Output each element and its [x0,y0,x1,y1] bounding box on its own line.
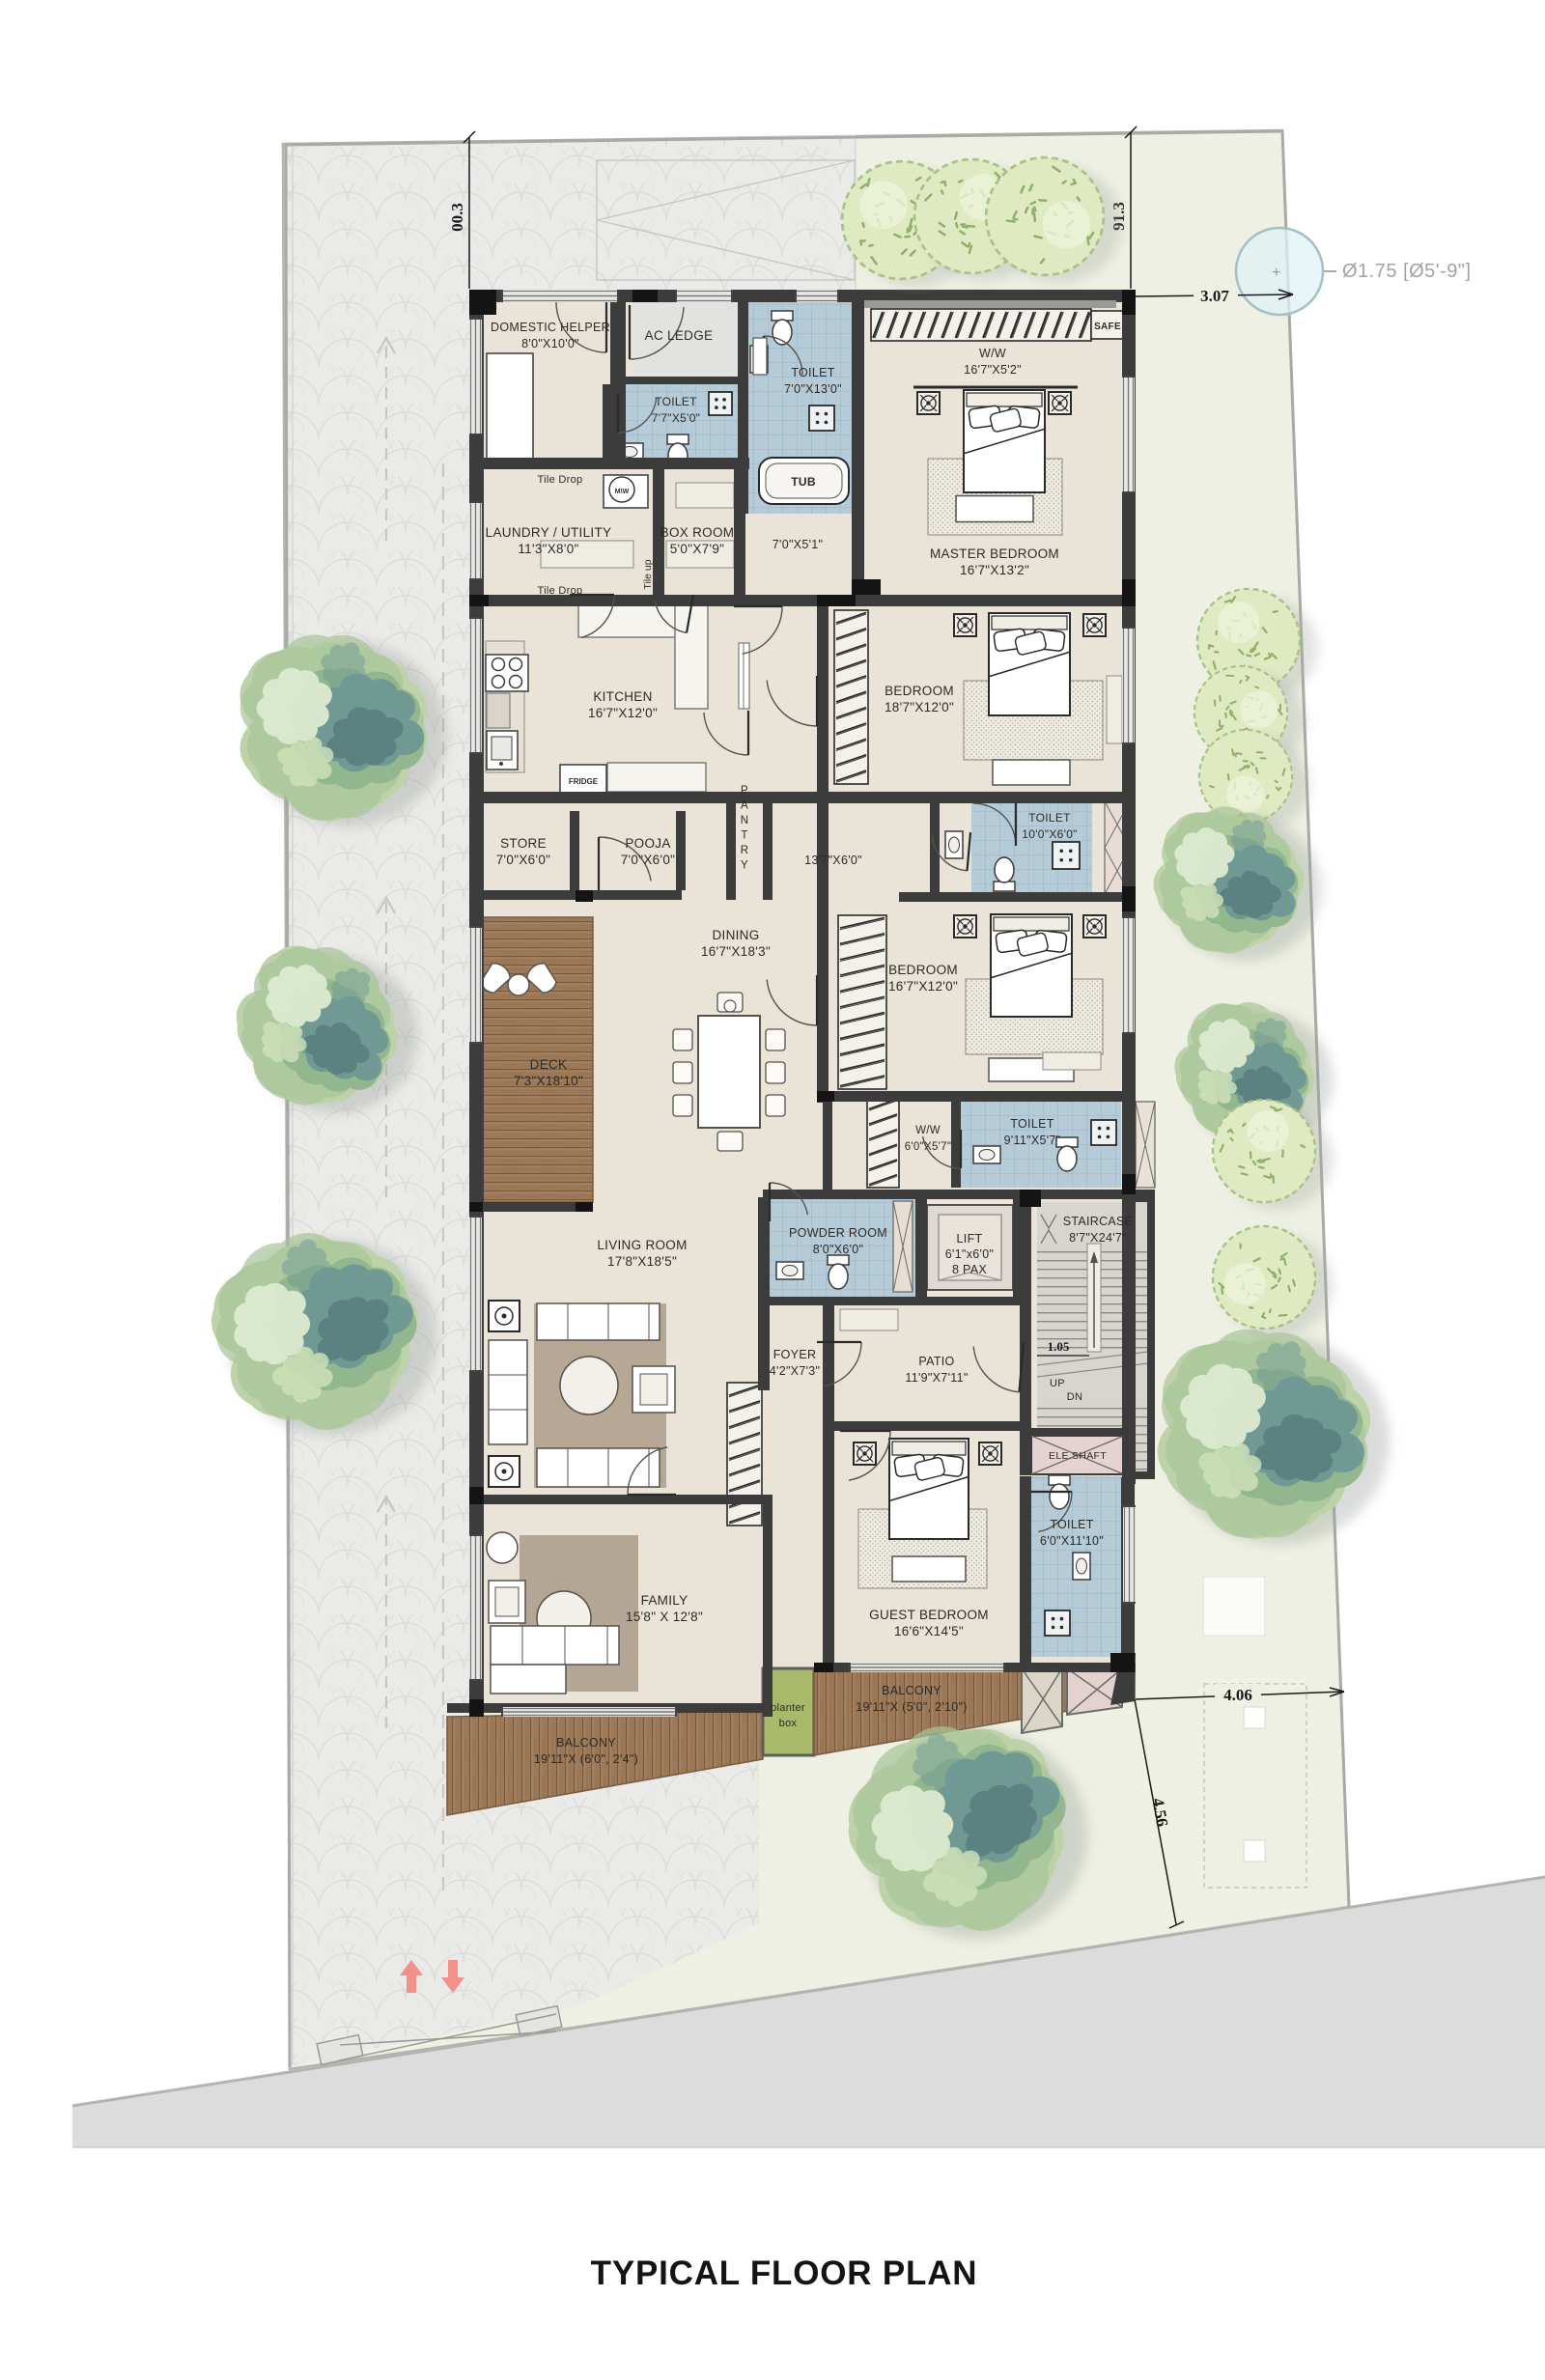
svg-text:4.06: 4.06 [1223,1686,1252,1704]
svg-text:19'11"X (6'0", 2'4"): 19'11"X (6'0", 2'4") [534,1752,638,1766]
svg-text:3.07: 3.07 [1200,287,1229,305]
svg-text:Tile Drop: Tile Drop [538,585,583,597]
svg-text:UP: UP [1050,1378,1065,1389]
svg-text:P: P [741,785,748,797]
svg-text:POOJA: POOJA [625,836,670,851]
svg-text:DECK: DECK [530,1057,568,1072]
svg-text:5'0"X7'9": 5'0"X7'9" [670,542,724,556]
svg-text:+: + [1272,265,1281,281]
svg-text:11'3"X8'0": 11'3"X8'0" [518,542,578,556]
svg-text:M\W: M\W [615,489,630,495]
svg-text:DOMESTIC HELPER: DOMESTIC HELPER [491,321,610,334]
svg-text:TOILET: TOILET [1050,1518,1093,1531]
svg-text:FRIDGE: FRIDGE [569,777,599,786]
svg-text:8'7"X24'7": 8'7"X24'7" [1069,1231,1127,1245]
svg-text:9'11"X5'7": 9'11"X5'7" [1004,1134,1061,1147]
svg-text:8 PAX: 8 PAX [952,1263,987,1276]
svg-text:Y: Y [741,860,748,872]
svg-text:8'0"X6'0": 8'0"X6'0" [813,1243,864,1256]
svg-text:FAMILY: FAMILY [641,1593,688,1608]
svg-text:TOILET: TOILET [791,366,834,379]
svg-text:6'0"X5'7": 6'0"X5'7" [905,1141,952,1153]
svg-text:MASTER BEDROOM: MASTER BEDROOM [930,546,1059,561]
svg-text:STORE: STORE [500,836,547,851]
svg-text:TOILET: TOILET [1028,811,1071,825]
svg-text:BALCONY: BALCONY [882,1684,941,1697]
svg-text:GUEST BEDROOM: GUEST BEDROOM [869,1608,989,1622]
svg-text:planter: planter [771,1702,805,1714]
svg-text:ELE.SHAFT: ELE.SHAFT [1049,1450,1107,1462]
svg-text:11'9"X7'11": 11'9"X7'11" [905,1371,968,1385]
svg-text:LIFT: LIFT [957,1232,983,1246]
svg-text:4'2"X7'3": 4'2"X7'3" [770,1364,821,1378]
svg-text:N: N [741,815,749,826]
svg-text:6'1"x6'0": 6'1"x6'0" [945,1247,994,1261]
svg-text:1.05: 1.05 [1048,1339,1070,1354]
svg-text:00.3: 00.3 [448,203,466,232]
svg-text:16'7"X13'2": 16'7"X13'2" [960,563,1029,577]
svg-text:LIVING ROOM: LIVING ROOM [597,1238,687,1252]
svg-text:7'0"X5'1": 7'0"X5'1" [772,538,824,551]
svg-text:STAIRCASE: STAIRCASE [1063,1215,1134,1228]
svg-text:13'7"X6'0": 13'7"X6'0" [804,854,862,867]
svg-text:7'7"X5'0": 7'7"X5'0" [652,411,701,425]
svg-text:box: box [779,1718,798,1729]
svg-text:16'7"X12'0": 16'7"X12'0" [888,979,958,994]
svg-text:8'0"X10'0": 8'0"X10'0" [521,337,579,350]
svg-text:POWDER ROOM: POWDER ROOM [789,1226,887,1240]
svg-text:7'0"X6'0": 7'0"X6'0" [621,853,675,867]
svg-text:16'7"X5'2": 16'7"X5'2" [964,363,1022,377]
svg-text:Tile up: Tile up [642,559,654,589]
svg-text:17'8"X18'5": 17'8"X18'5" [607,1254,677,1269]
svg-text:BEDROOM: BEDROOM [885,684,954,698]
svg-text:6'0"X11'10": 6'0"X11'10" [1040,1534,1104,1548]
svg-text:7'0"X13'0": 7'0"X13'0" [784,382,842,396]
svg-text:TYPICAL FLOOR PLAN: TYPICAL FLOOR PLAN [591,2254,978,2292]
svg-text:SAFE: SAFE [1094,322,1121,332]
svg-text:16'7"X12'0": 16'7"X12'0" [588,706,658,720]
svg-text:7'3"X18'10": 7'3"X18'10" [514,1074,583,1088]
svg-text:W/W: W/W [915,1125,941,1136]
svg-text:BALCONY: BALCONY [556,1736,616,1750]
svg-text:TUB: TUB [791,475,816,489]
svg-text:TOILET: TOILET [1010,1117,1053,1131]
svg-text:10'0"X6'0": 10'0"X6'0" [1022,827,1077,841]
svg-text:DINING: DINING [712,928,759,942]
svg-text:A: A [741,800,748,812]
svg-text:18'7"X12'0": 18'7"X12'0" [885,700,954,714]
svg-text:BEDROOM: BEDROOM [888,963,958,977]
svg-text:15'8" X 12'8": 15'8" X 12'8" [626,1610,703,1624]
svg-text:DN: DN [1067,1391,1083,1403]
svg-text:LAUNDRY / UTILITY: LAUNDRY / UTILITY [486,525,612,540]
svg-text:16'7"X18'3": 16'7"X18'3" [701,944,771,959]
svg-text:T: T [741,830,747,842]
svg-text:W/W: W/W [979,347,1006,360]
svg-text:BOX ROOM: BOX ROOM [660,525,735,540]
svg-text:TOILET: TOILET [655,395,697,408]
svg-text:19'11"X (5'0", 2'10"): 19'11"X (5'0", 2'10") [856,1700,968,1714]
svg-text:R: R [741,845,749,856]
svg-text:FOYER: FOYER [773,1348,817,1361]
svg-text:Ø1.75 [Ø5'-9"]: Ø1.75 [Ø5'-9"] [1342,261,1472,282]
svg-text:AC LEDGE: AC LEDGE [645,328,714,343]
svg-text:16'6"X14'5": 16'6"X14'5" [894,1624,964,1638]
svg-text:PATIO: PATIO [918,1355,954,1368]
svg-text:Tile Drop: Tile Drop [538,474,583,486]
svg-text:KITCHEN: KITCHEN [593,689,652,704]
svg-text:7'0"X6'0": 7'0"X6'0" [496,853,550,867]
